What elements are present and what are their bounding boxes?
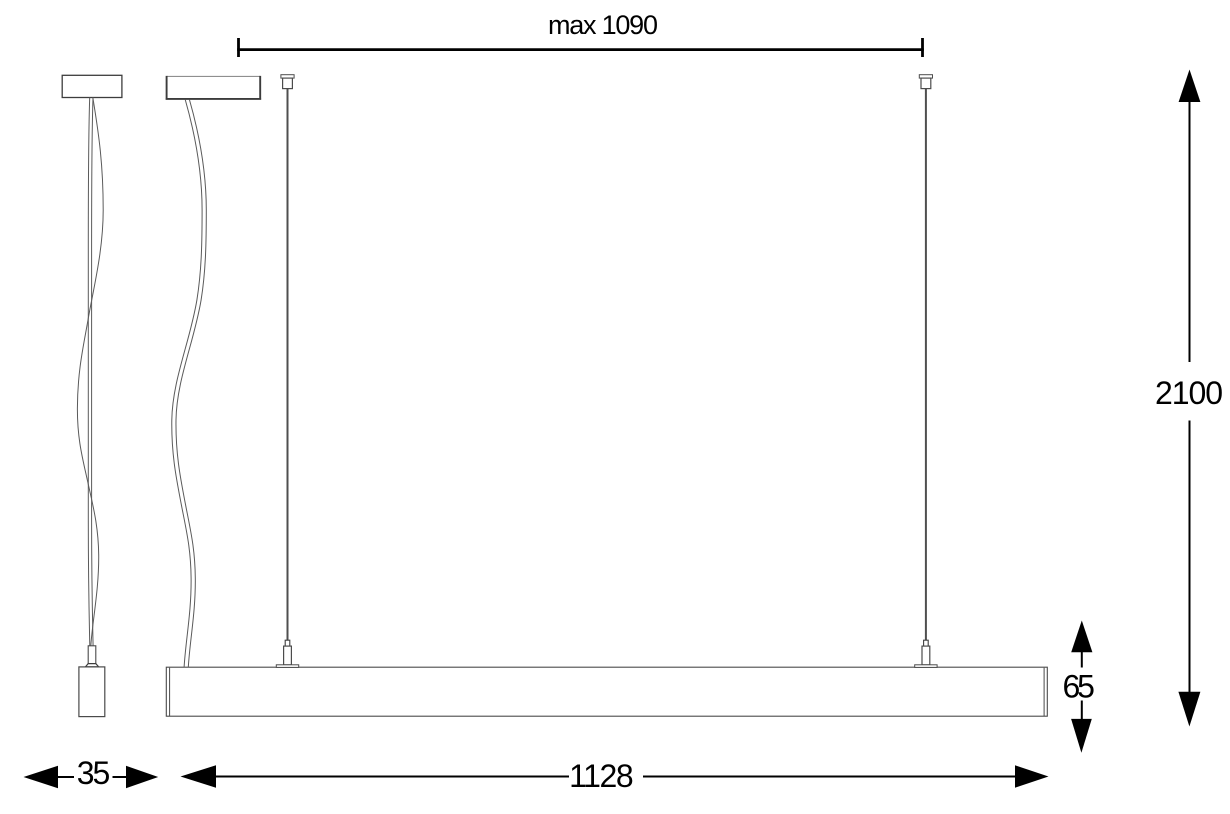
svg-text:35: 35 <box>77 755 111 791</box>
svg-text:2100: 2100 <box>1155 375 1223 411</box>
svg-text:65: 65 <box>1062 669 1095 705</box>
svg-text:1128: 1128 <box>569 758 634 794</box>
svg-text:max 1090: max 1090 <box>548 10 658 40</box>
